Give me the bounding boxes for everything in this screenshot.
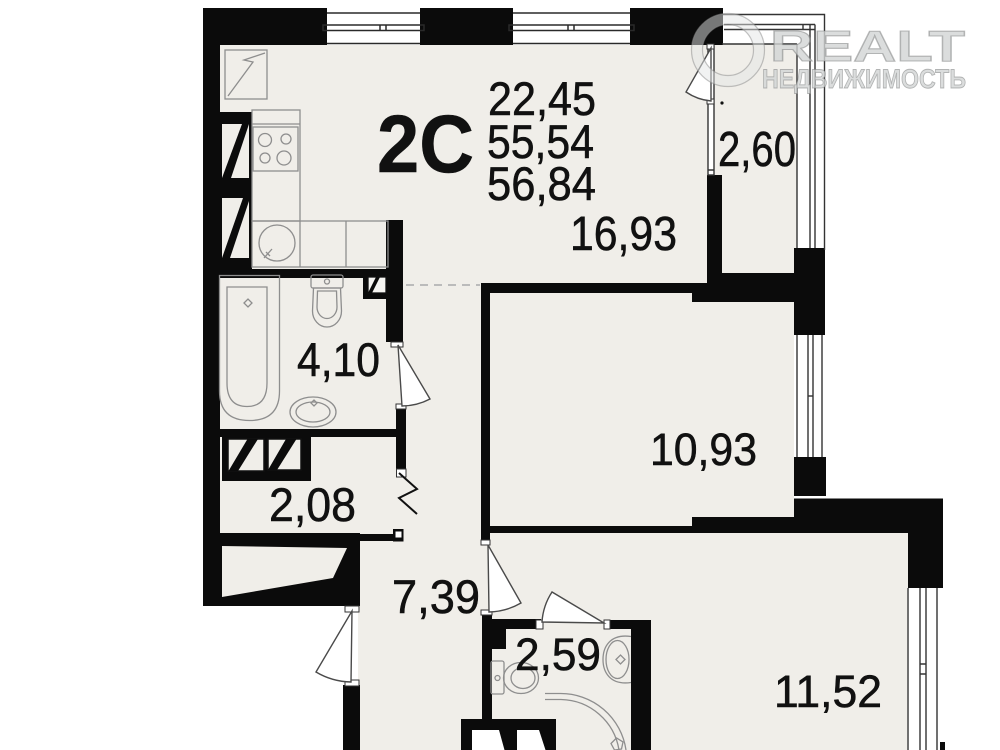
svg-text:11,52: 11,52 <box>774 666 882 717</box>
svg-text:2,08: 2,08 <box>269 478 356 531</box>
svg-text:16,93: 16,93 <box>570 208 677 261</box>
svg-text:7,39: 7,39 <box>392 570 480 623</box>
svg-text:2С: 2С <box>377 99 474 190</box>
svg-text:56,84: 56,84 <box>487 157 596 210</box>
svg-text:10,93: 10,93 <box>650 424 757 475</box>
svg-text:4,10: 4,10 <box>297 333 380 386</box>
svg-text:2,59: 2,59 <box>515 629 601 680</box>
svg-text:2,60: 2,60 <box>718 123 796 177</box>
svg-text:НЕДВИЖИМОСТЬ: НЕДВИЖИМОСТЬ <box>762 64 966 94</box>
